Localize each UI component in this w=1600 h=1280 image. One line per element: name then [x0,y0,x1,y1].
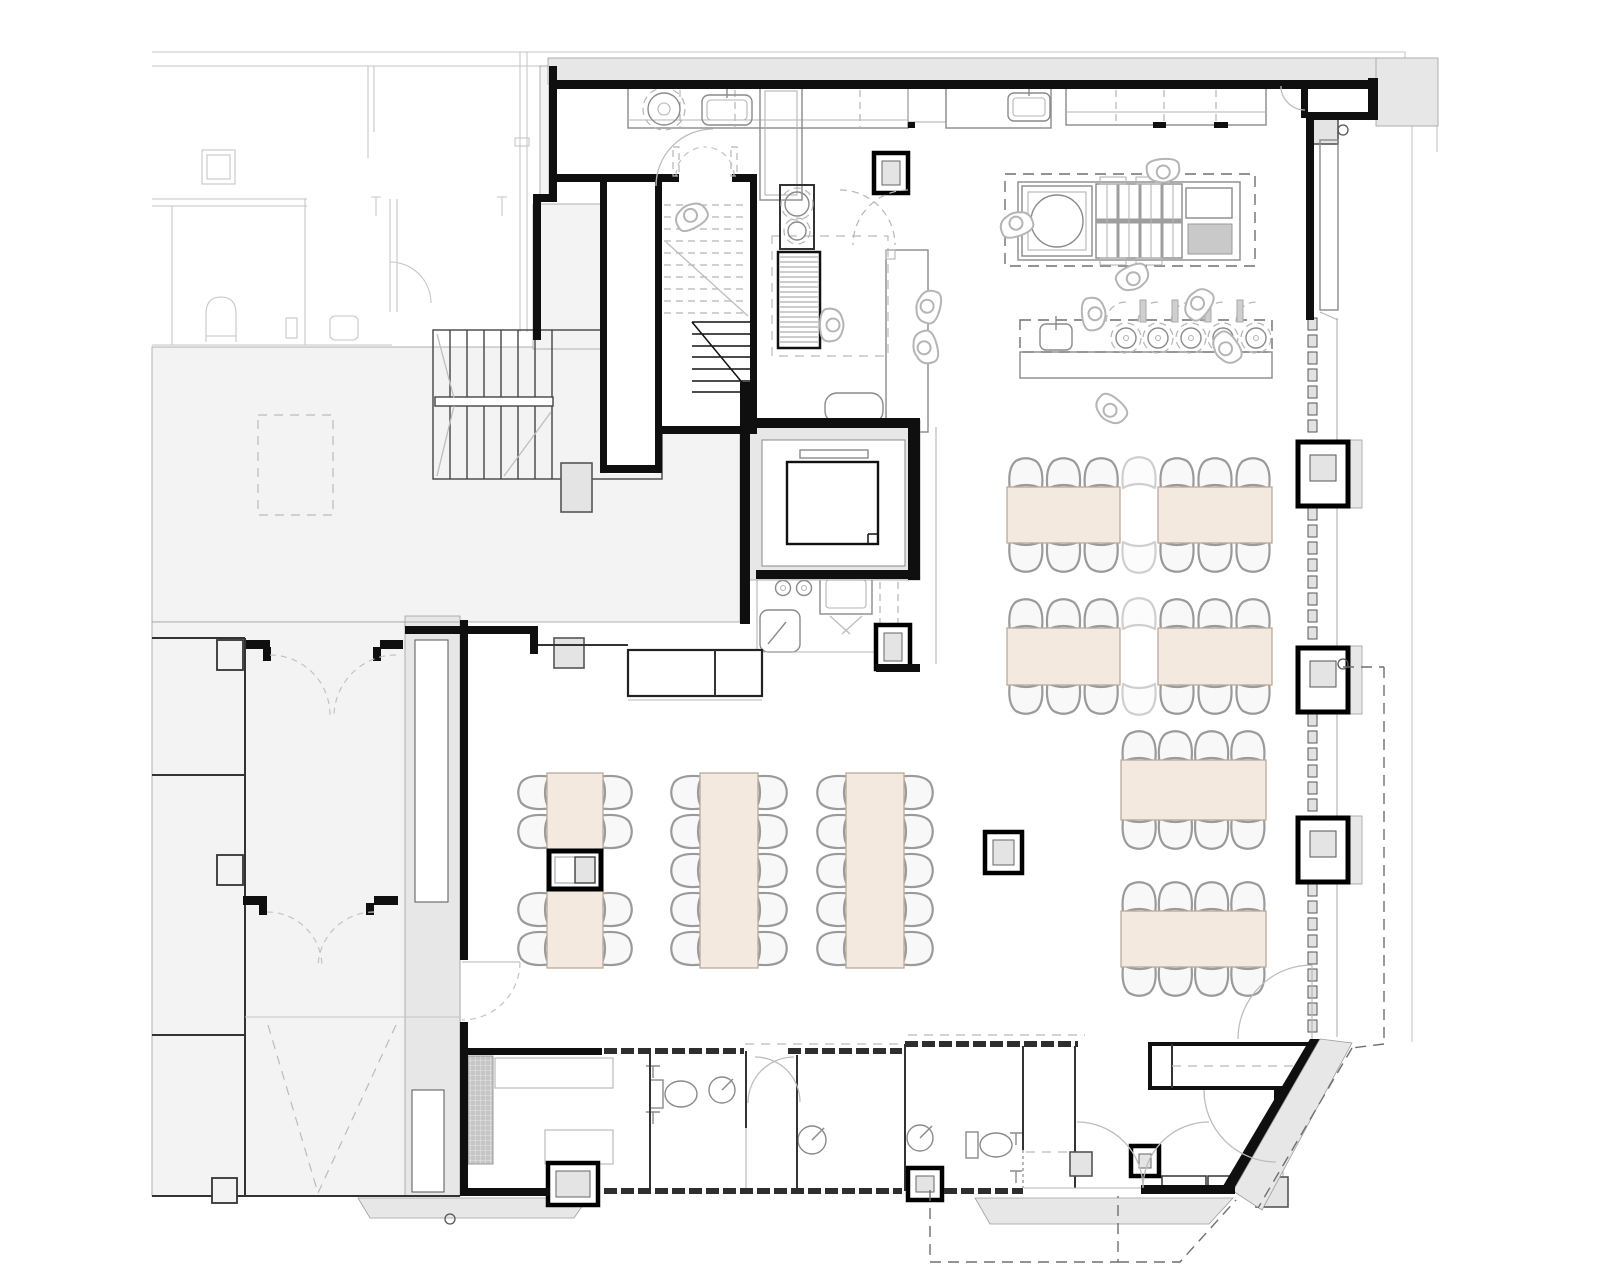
window-mullion [1308,782,1317,794]
chair [1195,882,1228,913]
chair [1047,541,1080,572]
chair [671,776,702,809]
wall-lift-bottom [756,570,920,579]
wall-step [1306,112,1378,120]
basin-icon [330,316,358,340]
chair [518,932,549,965]
person-figure [820,309,844,342]
wall-facade-upper [1306,118,1314,320]
wall-dish-stub [876,664,920,672]
chair [1159,818,1192,849]
table-top [547,890,603,968]
chair [671,854,702,887]
counter-tick [1214,122,1228,128]
chair [1009,599,1042,630]
window-mullion [1308,952,1317,964]
washbasin-tap [920,1126,932,1138]
context-door-arc [390,262,431,303]
table-a3 [817,773,933,968]
chair [601,815,632,848]
wall-lift-east [908,418,920,580]
wall-stairslot-east [750,178,757,432]
wall-lift-top [748,418,920,428]
window-mullion [1308,403,1317,415]
window-mullion [1308,935,1317,947]
table-b1-left [1007,458,1120,572]
shaft-upper [415,640,448,902]
floor-plan-page [0,0,1600,1280]
wall-dining-west-a [460,620,468,960]
chair [1236,541,1269,572]
chair [1009,458,1042,489]
party-wall [520,52,527,332]
column-table-a1 [549,851,601,889]
cabinet-row [628,650,762,696]
chair [1160,683,1193,714]
west-wall-band [540,66,549,198]
chair [1085,458,1118,489]
chair [817,854,848,887]
table-b2-right [1158,599,1272,714]
chair [902,815,933,848]
context-partition [368,66,374,158]
chair [1123,965,1156,996]
apron-east [975,1198,1233,1224]
wall-bottom-right [1141,1185,1235,1194]
window-mullion [1308,369,1317,381]
chair [1231,882,1264,913]
chair-ghost [1122,684,1155,715]
chair [756,776,787,809]
window-mullion [1308,352,1317,364]
chair [1198,683,1231,714]
table-top [846,773,904,968]
wall-pod-top-west [460,1048,602,1055]
wall-pod-bottom-west [460,1188,550,1196]
column-pod-west [548,1163,598,1205]
island-gray-unit [1188,224,1232,254]
context-shaft-inner [207,155,230,179]
chair [1231,965,1264,996]
chair [1085,541,1118,572]
facade-pier [1298,646,1362,714]
context-room-walls [152,199,397,345]
column-dishroom [876,625,910,669]
window-mullion [1308,714,1317,726]
column-corridor-3 [212,1178,237,1203]
column-kitchen [874,153,908,193]
chair-ghost [1122,457,1155,488]
chair [902,932,933,965]
chair [1198,599,1231,630]
chair [756,815,787,848]
wall-corridor-west [600,178,607,472]
chair [1231,818,1264,849]
toilet-standard [966,1132,1012,1158]
chair [902,776,933,809]
chair [902,893,933,926]
facade-pier [1298,440,1362,508]
chair [1160,458,1193,489]
column-pod-east [908,1168,942,1200]
chair [601,932,632,965]
wall-jog [530,626,538,654]
window-mullion [1308,508,1317,520]
column-west-wall [554,638,584,668]
chair [671,932,702,965]
glazing-band [1308,318,1317,432]
counter-tick [1153,122,1166,128]
chair [1236,683,1269,714]
window-mullion [1308,765,1317,777]
chair [1123,731,1156,762]
window-mullion [1308,799,1317,811]
window-mullion [1308,559,1317,571]
chair [817,893,848,926]
chair [518,893,549,926]
corridor-floor [607,184,655,474]
toilet-icon [206,297,236,342]
table-top [1121,911,1266,967]
column-stair-landing [561,463,592,512]
chair [1085,599,1118,630]
chair [1009,683,1042,714]
table-top [1121,760,1266,820]
chair [1160,541,1193,572]
wall-corridor-end [600,465,662,473]
column-entry-small [1070,1152,1092,1176]
counter-tick [908,122,915,128]
wall-west-lower [533,200,541,340]
window-mullion [1308,610,1317,622]
table-b2-left [1007,599,1120,714]
chair [817,815,848,848]
chair [1009,541,1042,572]
window-mullion [1308,335,1317,347]
shaft-lower [412,1090,444,1192]
window-mullion [1308,748,1317,760]
chair [902,854,933,887]
wall-dining-north-west [405,626,538,634]
exterior-wall-band-corner [1376,58,1438,126]
window-mullion [1308,542,1317,554]
window-mullion [1308,731,1317,743]
window-mullion [1308,901,1317,913]
chair [1159,882,1192,913]
chair [1159,965,1192,996]
window-mullion [1308,884,1317,896]
chair [1236,458,1269,489]
chair [756,893,787,926]
table-top [700,773,758,968]
chair [1085,683,1118,714]
table-top [1158,487,1272,543]
chair [671,815,702,848]
table-b1-right [1158,458,1272,572]
chair [518,815,549,848]
chair [1195,818,1228,849]
window-mullion [1308,593,1317,605]
chair [756,854,787,887]
wall-niche [1308,89,1370,112]
chair [756,932,787,965]
rack-unit [778,252,820,348]
chair [1159,731,1192,762]
floor-plan-svg [0,0,1600,1280]
window-mullion [1308,386,1317,398]
chair [1123,818,1156,849]
chair [1195,731,1228,762]
table-top [1007,487,1120,543]
chair [1195,965,1228,996]
chair [518,776,549,809]
washbasin-tap [812,1128,824,1140]
column-dining-center [985,832,1022,873]
chair [1047,599,1080,630]
stair-rail [435,397,553,406]
chair-ghost [1122,598,1155,629]
window-mullion [1308,918,1317,930]
chair [1047,683,1080,714]
chair [601,776,632,809]
column-corridor-1 [217,640,243,670]
table-top [547,773,603,851]
fixture-tap-icon [371,197,507,216]
table-a2 [671,773,787,968]
chair [1047,458,1080,489]
chair [1160,599,1193,630]
cistern-icon [286,318,297,338]
chair [817,932,848,965]
column-corridor-2 [217,855,243,885]
common-pocket [533,204,604,349]
chair [1236,599,1269,630]
table-top [1158,628,1272,685]
wall-west-kitchen [549,66,557,200]
window-mullion [1308,627,1317,639]
chair [671,893,702,926]
facade-pier [1298,816,1362,884]
chair [1198,458,1231,489]
table-top [1007,628,1120,685]
chair [1198,541,1231,572]
chair [1123,882,1156,913]
window-mullion [1308,525,1317,537]
chair-ghost [1122,542,1155,573]
lift-car [787,462,878,544]
chair [1231,731,1264,762]
grille-hatch [468,1056,493,1164]
chair [817,776,848,809]
chair [601,893,632,926]
wall-corridor-east [655,178,662,472]
wall-top [553,80,1377,89]
window-mullion [1308,420,1317,432]
window-mullion [1308,576,1317,588]
fixture-tap-icon [1010,1133,1022,1183]
